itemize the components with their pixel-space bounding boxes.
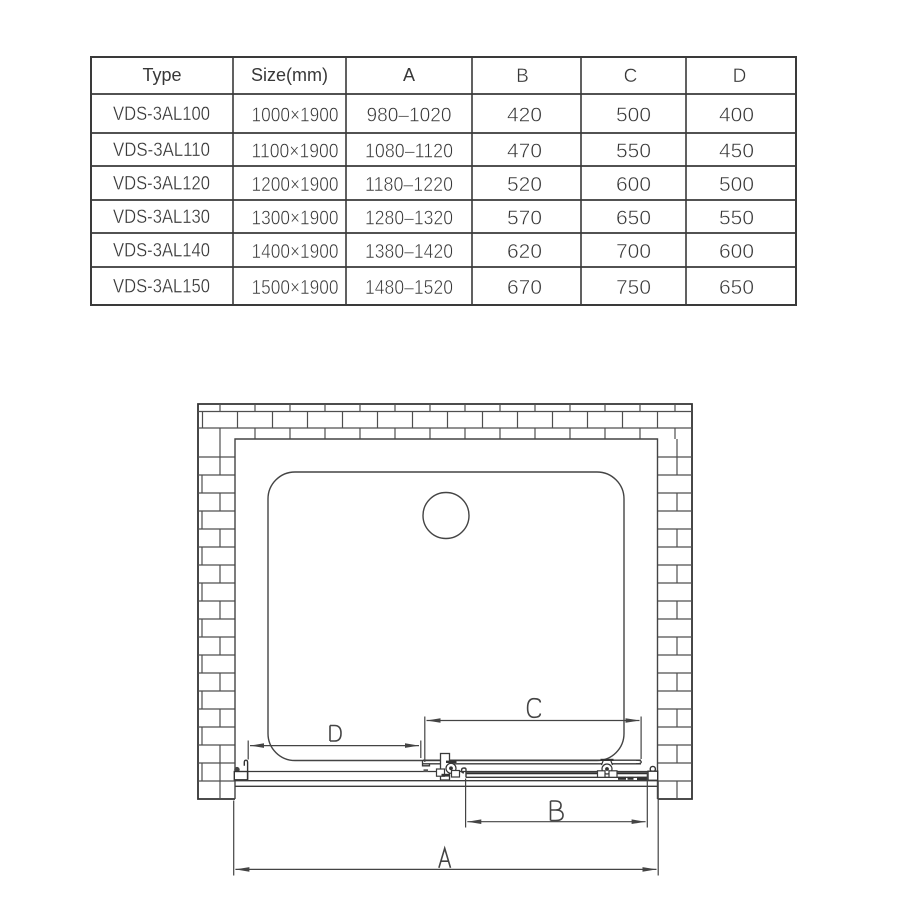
svg-text:1100×1900: 1100×1900 — [252, 141, 339, 163]
svg-text:VDS-3AL130: VDS-3AL130 — [113, 207, 210, 228]
svg-text:600: 600 — [616, 174, 651, 196]
svg-text:VDS-3AL100: VDS-3AL100 — [113, 104, 210, 125]
svg-text:650: 650 — [616, 208, 651, 230]
svg-text:VDS-3AL150: VDS-3AL150 — [113, 277, 210, 298]
svg-text:VDS-3AL120: VDS-3AL120 — [113, 174, 210, 195]
svg-text:670: 670 — [507, 277, 542, 299]
svg-text:550: 550 — [616, 141, 651, 163]
svg-text:550: 550 — [719, 208, 754, 230]
svg-text:600: 600 — [719, 241, 754, 263]
svg-text:B: B — [516, 66, 529, 87]
svg-text:Size(mm): Size(mm) — [251, 65, 328, 85]
svg-text:1380–1420: 1380–1420 — [365, 241, 453, 263]
svg-text:1180–1220: 1180–1220 — [365, 174, 453, 196]
svg-text:VDS-3AL110: VDS-3AL110 — [113, 140, 210, 161]
svg-text:620: 620 — [507, 241, 542, 263]
svg-text:1480–1520: 1480–1520 — [365, 277, 453, 299]
svg-text:C: C — [624, 66, 638, 87]
svg-text:1300×1900: 1300×1900 — [252, 208, 339, 230]
svg-text:450: 450 — [719, 141, 754, 163]
svg-text:1280–1320: 1280–1320 — [365, 208, 453, 230]
svg-text:1200×1900: 1200×1900 — [252, 174, 339, 196]
svg-text:VDS-3AL140: VDS-3AL140 — [113, 241, 210, 262]
svg-text:700: 700 — [616, 241, 651, 263]
svg-text:500: 500 — [616, 105, 651, 127]
svg-text:500: 500 — [719, 174, 754, 196]
svg-text:420: 420 — [507, 105, 542, 127]
svg-text:980–1020: 980–1020 — [367, 105, 452, 127]
svg-text:A: A — [403, 65, 415, 85]
svg-text:470: 470 — [507, 141, 542, 163]
svg-text:1400×1900: 1400×1900 — [252, 241, 339, 263]
svg-text:570: 570 — [507, 208, 542, 230]
svg-text:1080–1120: 1080–1120 — [365, 141, 453, 163]
svg-text:650: 650 — [719, 277, 754, 299]
svg-text:750: 750 — [616, 277, 651, 299]
svg-text:Type: Type — [142, 65, 181, 85]
svg-text:520: 520 — [507, 174, 542, 196]
svg-text:D: D — [733, 66, 747, 87]
svg-text:400: 400 — [719, 105, 754, 127]
svg-text:1500×1900: 1500×1900 — [252, 277, 339, 299]
svg-text:1000×1900: 1000×1900 — [252, 105, 339, 127]
